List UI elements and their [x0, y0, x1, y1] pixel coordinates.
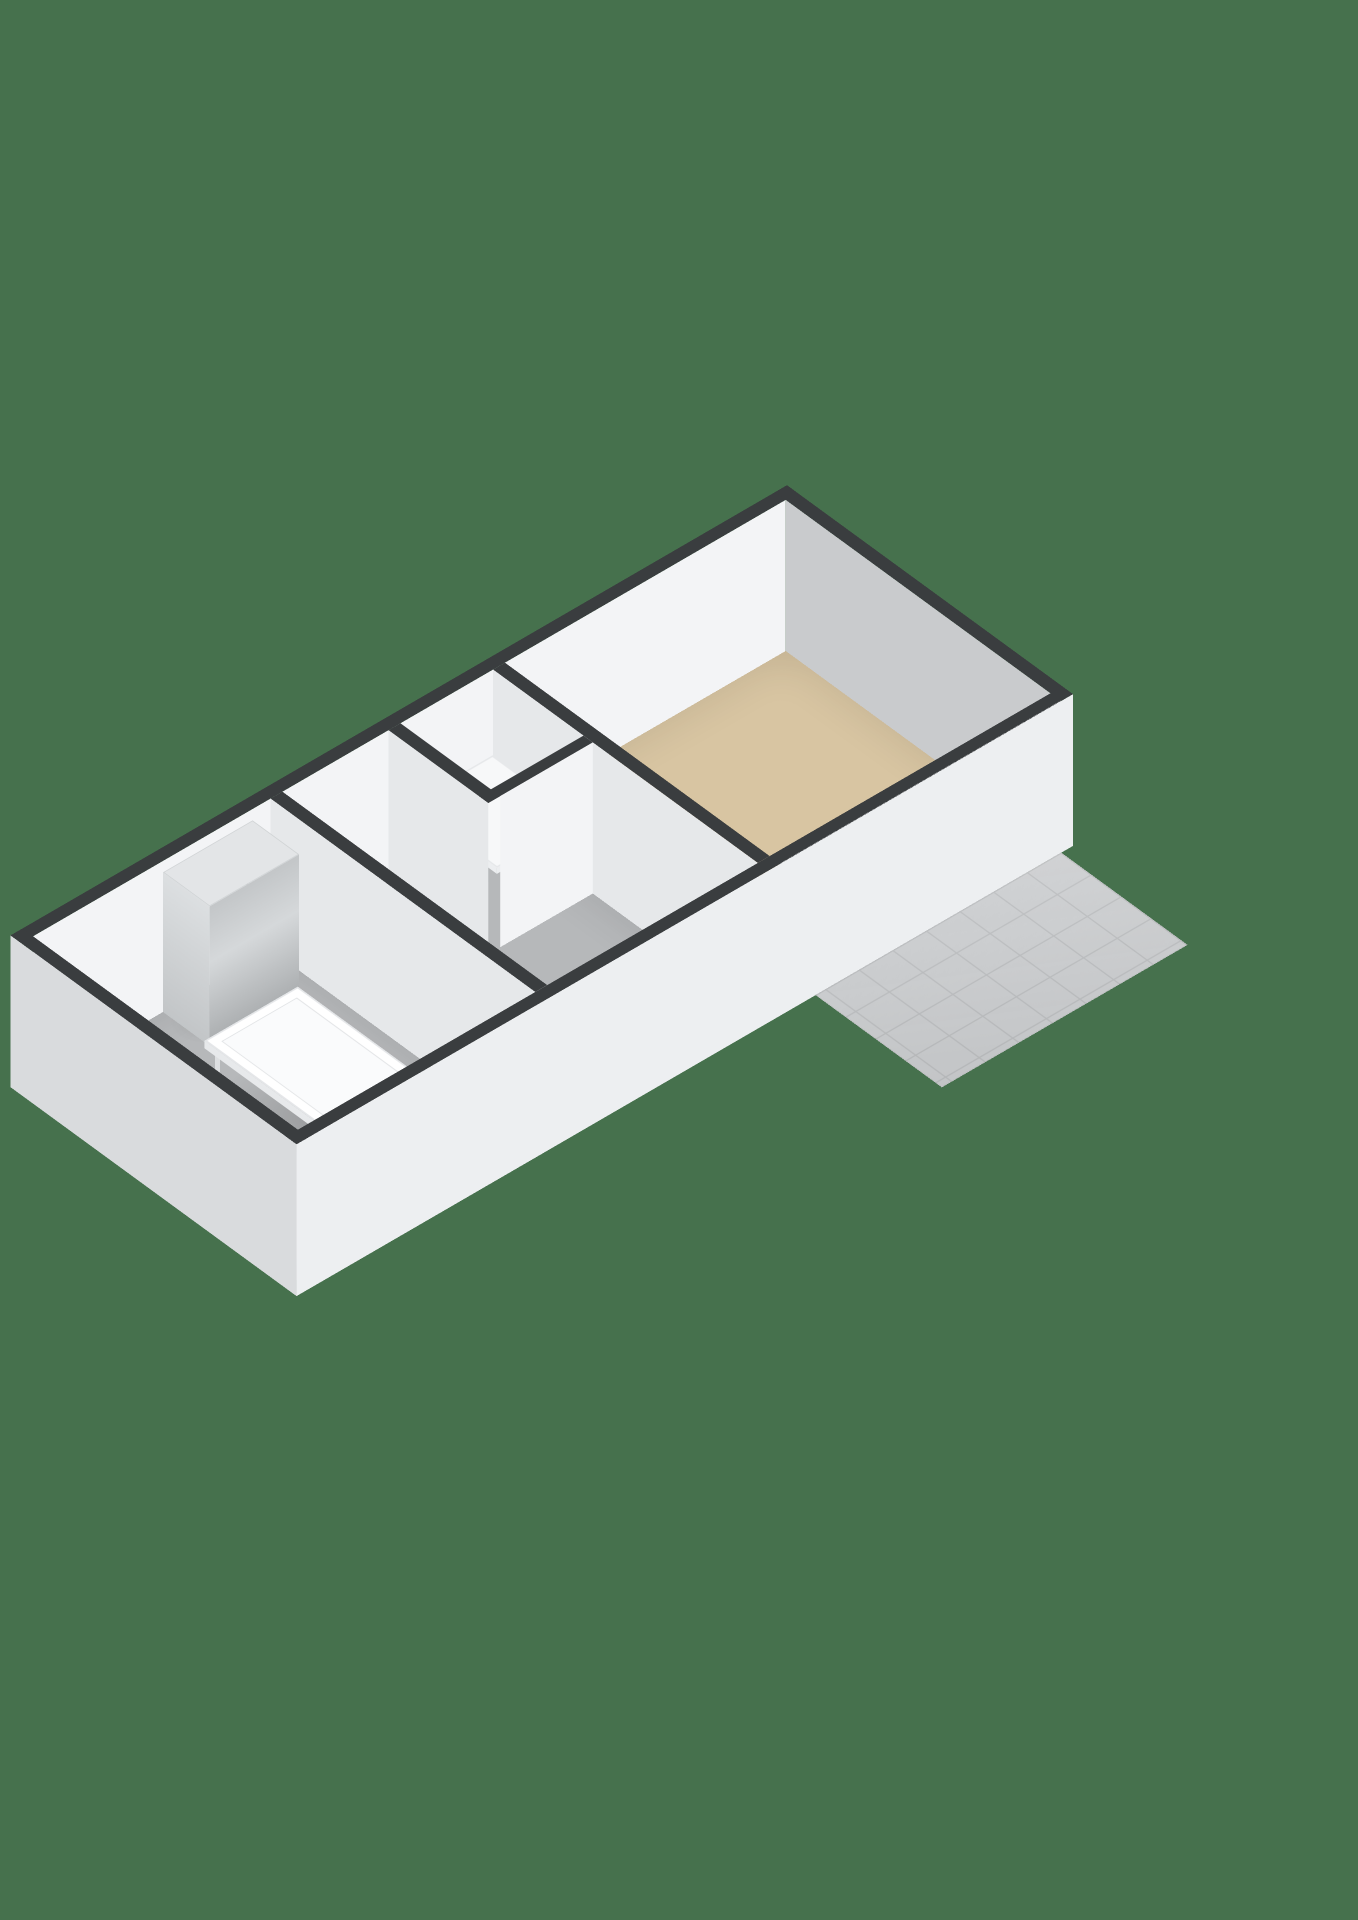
glass-panel	[955, 744, 1004, 906]
glass-door-left	[901, 776, 950, 938]
front-door-glass	[579, 995, 616, 1062]
front-door-handle-icon	[573, 1060, 583, 1070]
refrigerator-door-seam	[251, 881, 252, 1022]
french-door-handle-icon	[905, 862, 915, 873]
glass-door-right	[847, 807, 896, 969]
front-door	[570, 978, 625, 1138]
canvas-background	[0, 0, 1358, 1920]
french-door-handle-icon	[882, 875, 892, 886]
refrigerator-door-seam	[247, 884, 248, 1025]
refrigerator-door-gap	[253, 909, 292, 976]
glass-panel	[1009, 711, 1061, 875]
glass-panel	[780, 838, 843, 1008]
garage-window	[412, 1080, 483, 1206]
